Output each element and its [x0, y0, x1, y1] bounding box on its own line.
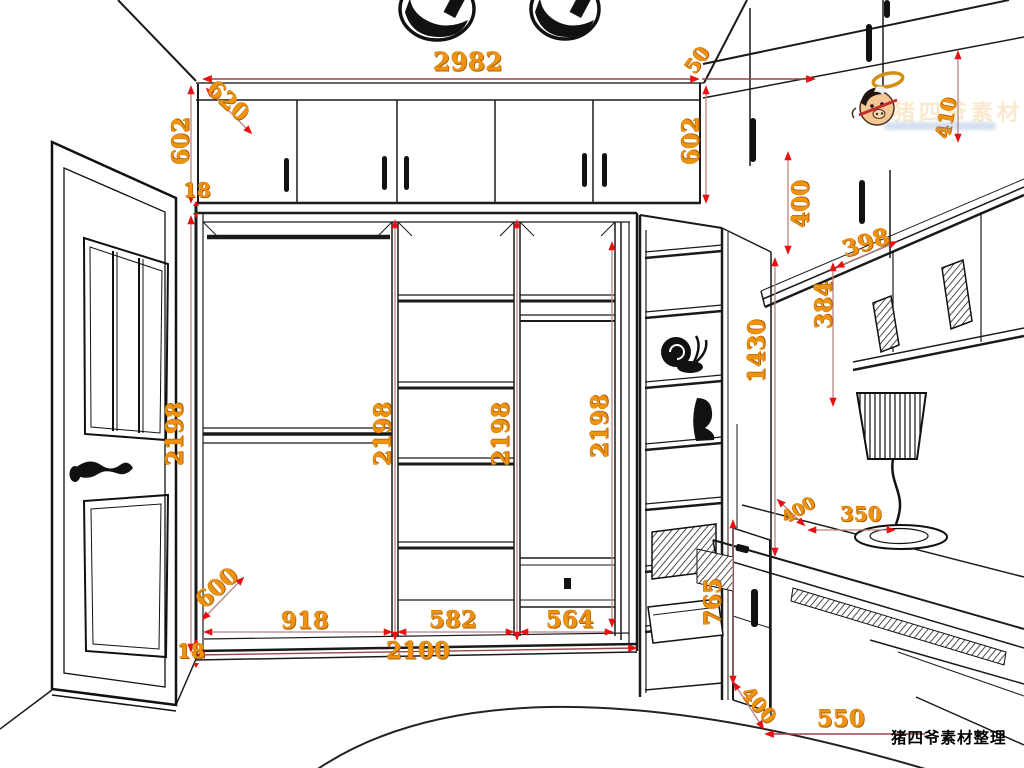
dim-wardrobe-height-3: 2198: [589, 394, 612, 458]
cabinet-handle-icons: [284, 153, 607, 192]
dim-right-wall-height: 1430: [746, 319, 769, 383]
halo-icon: [872, 71, 904, 90]
dim-wardrobe-height-2: 2198: [490, 402, 513, 466]
watermark-bottom-text: 猪四爷素材整理: [891, 726, 1007, 748]
leaning-book: [873, 296, 899, 352]
dim-right-upper-height: 400: [790, 180, 813, 228]
dim-top-gap: 18: [183, 180, 211, 200]
dim-desk-width: 550: [817, 708, 865, 731]
dim-wardrobe-width: 2100: [386, 640, 450, 663]
wardrobe: [196, 205, 637, 660]
snail-ornament: [661, 336, 706, 373]
dim-section3-width: 564: [546, 609, 594, 632]
drawer-knob-icon: [735, 544, 749, 554]
dim-lamp-offset: 350: [840, 504, 882, 524]
keyboard-tray: [791, 588, 1006, 665]
dim-section2-width: 582: [429, 609, 477, 632]
vase-ornament: [693, 398, 714, 441]
ceiling-lights: [400, 0, 599, 40]
leaning-book: [942, 260, 972, 329]
watermark-blue-bar: [884, 122, 996, 130]
dim-upper-cabinet-height-left: 602: [170, 117, 193, 165]
drawing-canvas: [0, 0, 1024, 768]
blueprint-page: 2982 50 620 602 18 602 2198 2198 2198 21…: [0, 0, 1024, 768]
dim-ceiling-width: 2982: [433, 50, 503, 75]
dim-wardrobe-height-door-side: 2198: [164, 402, 187, 466]
corner-shelf-unit: [640, 215, 771, 716]
dim-right-niche-height: 384: [813, 281, 836, 329]
dim-wardrobe-height-1: 2198: [372, 402, 395, 466]
door: [52, 142, 176, 711]
dim-desk-height: 765: [702, 578, 725, 626]
dim-bottom-gap: 18: [177, 641, 205, 661]
dim-upper-cabinet-height-right: 602: [680, 117, 703, 165]
drawer-knob-icon: [564, 578, 571, 589]
dim-section1-width: 918: [281, 610, 329, 633]
upper-cabinets: [196, 83, 700, 204]
cabinet-handle-icon: [751, 589, 758, 627]
